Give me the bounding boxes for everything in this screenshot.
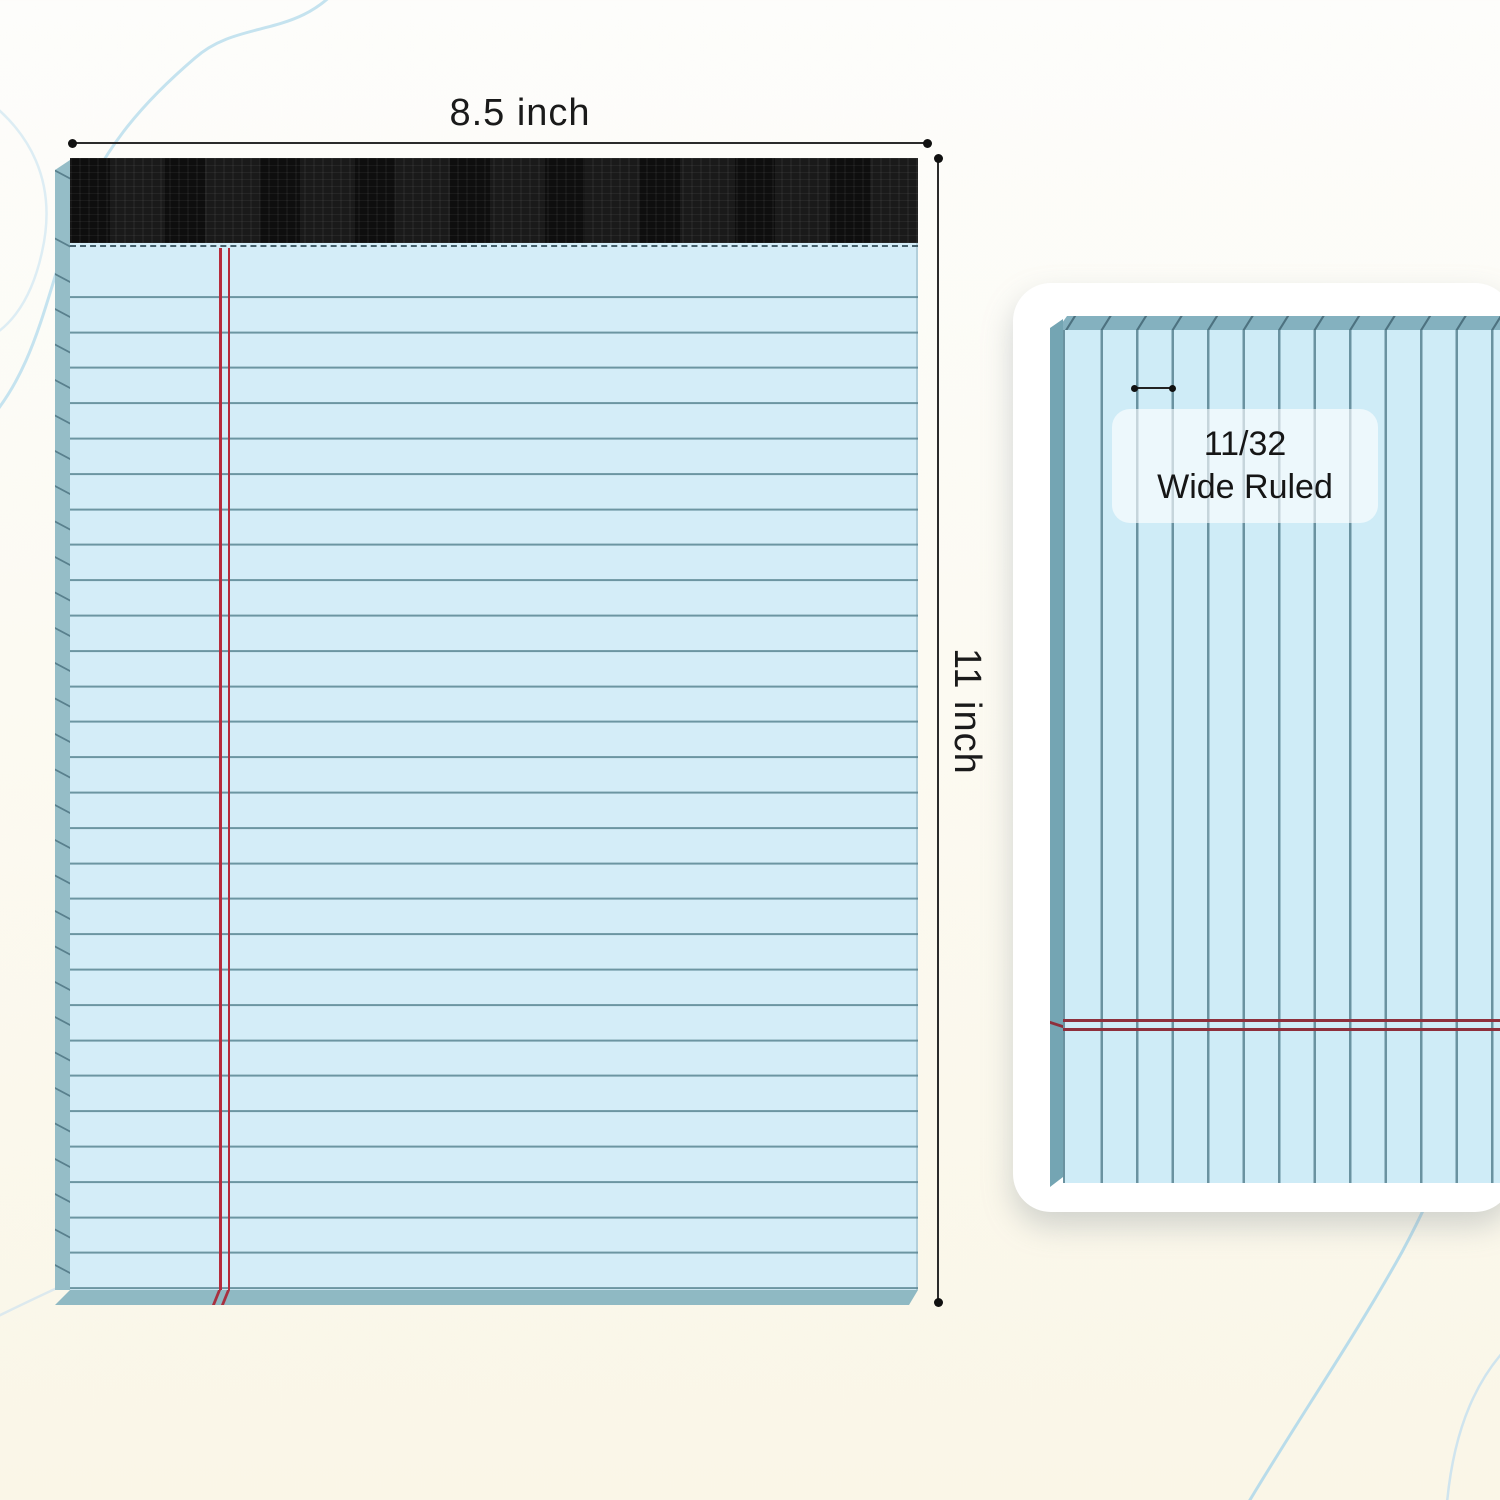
ruling-size-label: 11/32 Wide Ruled: [1112, 409, 1378, 523]
detail-pad-left-edge: [1050, 319, 1063, 1187]
detail-margin-line-bottom: [1063, 1028, 1500, 1031]
curve-left-inner: [0, 95, 47, 342]
height-dimension-dot-bottom: [934, 1298, 943, 1307]
marker-dot-right: [1169, 385, 1176, 392]
ruling-detail-card: 11/32 Wide Ruled: [1013, 283, 1500, 1212]
pad-margin-line-left: [219, 248, 222, 1290]
width-dimension-line: [72, 142, 928, 144]
detail-pad-top-edge: [1057, 316, 1500, 330]
marker-dot-left: [1131, 385, 1138, 392]
pad-bottom-edge: [55, 1290, 918, 1305]
margin-line-edge-mark: [212, 1290, 221, 1305]
height-dimension-dot-top: [934, 154, 943, 163]
pad-stitch-line: [70, 245, 918, 247]
legal-pad: [55, 158, 918, 1305]
detail-margin-line-top: [1063, 1019, 1500, 1022]
pad-left-edge: [55, 160, 70, 1290]
width-dimension-label: 8.5 inch: [320, 92, 720, 135]
pad-ruled-paper: [70, 243, 918, 1290]
pad-margin-line-right: [228, 248, 231, 1290]
width-dimension-dot-left: [68, 139, 77, 148]
width-dimension-dot-right: [923, 139, 932, 148]
margin-line-edge-mark: [220, 1290, 229, 1305]
ruling-size-name: Wide Ruled: [1157, 466, 1333, 509]
curve-corner-right: [1446, 1335, 1500, 1500]
height-dimension-label: 11 inch: [945, 648, 988, 775]
pad-binding-strip: [70, 158, 918, 243]
ruling-width-marker: [1135, 387, 1172, 389]
height-dimension-line: [937, 158, 939, 1303]
ruling-size-value: 11/32: [1204, 423, 1287, 466]
